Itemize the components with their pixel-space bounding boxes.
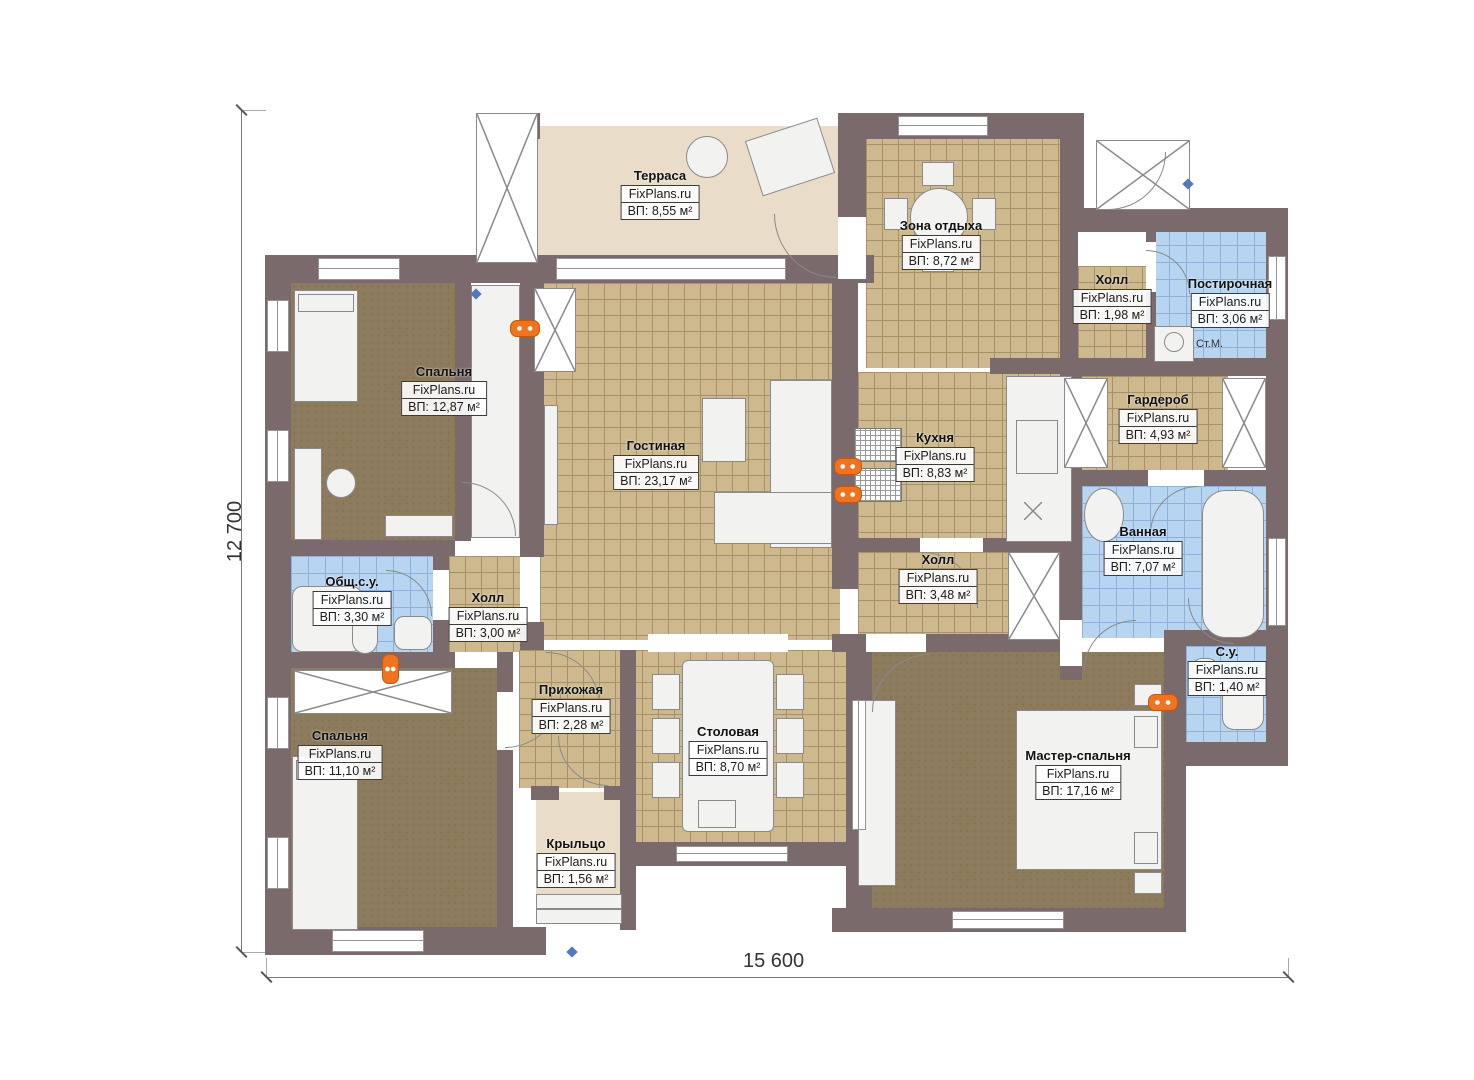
radiator-icon [834, 486, 862, 503]
tv-cabinet-icon [544, 405, 558, 525]
wall [433, 540, 449, 570]
nightstand-icon [1134, 872, 1162, 894]
wall [620, 650, 636, 930]
room-area: ВП: 8,83 м² [897, 465, 974, 481]
room-label-hall-top: Холл FixPlans.ru ВП: 1,98 м² [1073, 272, 1152, 324]
door-opening [1148, 470, 1204, 486]
watermark: FixPlans.ru [450, 608, 527, 625]
porch-step [536, 894, 622, 909]
room-name: Гостиная [613, 438, 699, 453]
room-label-wardrobe: Гардероб FixPlans.ru ВП: 4,93 м² [1119, 392, 1198, 444]
hall-closet-icon [1008, 552, 1060, 640]
radiator-icon [1148, 694, 1178, 711]
room-name: Спальня [298, 728, 383, 743]
wall [497, 652, 513, 692]
wall [265, 540, 455, 556]
window [952, 911, 1064, 929]
room-name: Холл [899, 552, 978, 567]
room-area: ВП: 23,17 м² [614, 473, 698, 489]
wall [604, 786, 620, 800]
door-opening [648, 634, 788, 652]
window [556, 258, 786, 280]
wall [497, 750, 513, 930]
window [267, 300, 289, 352]
wall [832, 538, 920, 552]
room-name: Общ.с.у. [313, 574, 392, 589]
survey-marker-icon [566, 946, 577, 957]
window [267, 430, 289, 482]
wardrobe-cabinet-icon [1064, 378, 1108, 468]
room-label-entry: Прихожая FixPlans.ru ВП: 2,28 м² [532, 682, 611, 734]
dimension-width-label: 15 600 [743, 950, 804, 973]
watermark: FixPlans.ru [538, 854, 615, 871]
room-area: ВП: 8,55 м² [622, 203, 699, 219]
window [267, 837, 289, 889]
room-label-rest-area: Зона отдыха FixPlans.ru ВП: 8,72 м² [900, 218, 982, 270]
wall [1060, 139, 1084, 209]
room-name: Прихожая [532, 682, 611, 697]
room-label-kitchen: Кухня FixPlans.ru ВП: 8,83 м² [896, 430, 975, 482]
dimension-height-label: 12 700 [224, 501, 247, 562]
chair-icon [652, 762, 680, 798]
room-label-bedroom1: Спальня FixPlans.ru ВП: 12,87 м² [401, 364, 487, 416]
watermark: FixPlans.ru [1120, 410, 1197, 427]
watermark: FixPlans.ru [1105, 542, 1182, 559]
window [332, 930, 424, 952]
room-area: ВП: 17,16 м² [1036, 783, 1120, 799]
room-name: Постирочная [1188, 276, 1272, 291]
watermark: FixPlans.ru [690, 742, 767, 759]
room-area: ВП: 7,07 м² [1105, 559, 1182, 575]
window [267, 697, 289, 749]
radiator-icon [834, 458, 862, 475]
room-area: ВП: 11,10 м² [299, 763, 382, 779]
room-name: Терраса [621, 168, 700, 183]
room-label-hall-right: Холл FixPlans.ru ВП: 3,48 м² [899, 552, 978, 604]
radiator-icon [510, 320, 540, 337]
dimension-line-horizontal [266, 977, 1288, 978]
room-name: Гардероб [1119, 392, 1198, 407]
room-name: Крыльцо [537, 836, 616, 851]
room-label-bathroom: Ванная FixPlans.ru ВП: 7,07 м² [1104, 524, 1183, 576]
kitchen-sink-icon [1016, 420, 1058, 474]
room-area: ВП: 3,48 м² [900, 587, 977, 603]
chair-icon [652, 718, 680, 754]
chair-icon [776, 762, 804, 798]
bed-pillow [298, 294, 354, 312]
bed-pillow [1134, 832, 1158, 864]
room-area: ВП: 8,70 м² [690, 759, 767, 775]
room-label-porch: Крыльцо FixPlans.ru ВП: 1,56 м² [537, 836, 616, 888]
room-area: ВП: 2,28 м² [533, 717, 610, 733]
watermark: FixPlans.ru [1189, 662, 1266, 679]
room-label-hall-left: Холл FixPlans.ru ВП: 3,00 м² [449, 590, 528, 642]
coffee-table-icon [702, 398, 746, 462]
room-name: Ванная [1104, 524, 1183, 539]
extension-line [1288, 958, 1289, 977]
watermark: FixPlans.ru [900, 570, 977, 587]
watermark: FixPlans.ru [1074, 290, 1151, 307]
room-area: ВП: 1,40 м² [1189, 679, 1266, 695]
wall [1060, 666, 1082, 680]
porch-step [536, 909, 622, 924]
bedroom2-closet-icon [294, 670, 452, 714]
wc-sink-icon [394, 616, 432, 650]
window [676, 846, 788, 862]
chair-icon [652, 674, 680, 710]
terrace-screen [476, 113, 538, 263]
room-name: Зона отдыха [900, 218, 982, 233]
watermark: FixPlans.ru [1036, 766, 1120, 783]
watermark: FixPlans.ru [1192, 294, 1269, 311]
wall [531, 786, 559, 800]
room-label-bedroom2: Спальня FixPlans.ru ВП: 11,10 м² [298, 728, 383, 780]
chair-icon [698, 800, 736, 828]
room-area: ВП: 12,87 м² [402, 399, 486, 415]
desk-chair-icon [326, 468, 356, 498]
room-area: ВП: 3,06 м² [1192, 311, 1269, 327]
floor-plan: 12 700 15 600 Ст.М. Терраса FixPlans.ru … [0, 0, 1474, 1080]
bed-icon [292, 756, 358, 930]
window [898, 116, 988, 136]
room-area: ВП: 1,98 м² [1074, 307, 1151, 323]
window [852, 700, 866, 830]
wall [1060, 208, 1288, 232]
door-opening [920, 538, 983, 552]
watermark: FixPlans.ru [903, 236, 980, 253]
watermark: FixPlans.ru [314, 592, 391, 609]
bed-pillow [1134, 716, 1158, 748]
hob-mark-icon [1024, 502, 1042, 520]
watermark: FixPlans.ru [897, 448, 974, 465]
door-opening [866, 634, 926, 652]
room-label-wc-small: С.у. FixPlans.ru ВП: 1,40 м² [1188, 644, 1267, 696]
chair-icon [776, 718, 804, 754]
room-name: Кухня [896, 430, 975, 445]
washing-machine-label: Ст.М. [1196, 338, 1223, 350]
room-label-living: Гостиная FixPlans.ru ВП: 23,17 м² [613, 438, 699, 490]
room-label-wc-common: Общ.с.у. FixPlans.ru ВП: 3,30 м² [313, 574, 392, 626]
wall [265, 652, 455, 668]
chair-icon [922, 162, 954, 186]
room-area: ВП: 3,00 м² [450, 625, 527, 641]
room-name: Спальня [401, 364, 487, 379]
room-label-master: Мастер-спальня FixPlans.ru ВП: 17,16 м² [1025, 748, 1130, 800]
wardrobe-cabinet-icon [1222, 378, 1266, 468]
room-area: ВП: 8,72 м² [903, 253, 980, 269]
extension-line [266, 958, 267, 977]
room-label-dining: Столовая FixPlans.ru ВП: 8,70 м² [689, 724, 768, 776]
room-area: ВП: 3,30 м² [314, 609, 391, 625]
room-name: С.у. [1188, 644, 1267, 659]
watermark: FixPlans.ru [299, 746, 382, 763]
room-name: Холл [449, 590, 528, 605]
washer-door-icon [1164, 332, 1184, 352]
door-opening [838, 217, 866, 279]
radiator-icon [382, 654, 399, 684]
room-area: ВП: 1,56 м² [538, 871, 615, 887]
fireplace-icon [534, 288, 576, 372]
watermark: FixPlans.ru [614, 456, 698, 473]
window [1268, 538, 1286, 626]
room-label-laundry: Постирочная FixPlans.ru ВП: 3,06 м² [1188, 276, 1272, 328]
watermark: FixPlans.ru [622, 186, 699, 203]
wall [990, 358, 1080, 374]
door-opening [1060, 620, 1082, 666]
room-name: Холл [1073, 272, 1152, 287]
dresser-icon [385, 515, 453, 537]
room-area: ВП: 4,93 м² [1120, 427, 1197, 443]
watermark: FixPlans.ru [402, 382, 486, 399]
sofa-chaise-icon [714, 492, 832, 544]
chair-icon [776, 674, 804, 710]
room-name: Мастер-спальня [1025, 748, 1130, 763]
watermark: FixPlans.ru [533, 700, 610, 717]
room-name: Столовая [689, 724, 768, 739]
wall [433, 620, 449, 668]
room-label-terrace: Терраса FixPlans.ru ВП: 8,55 м² [621, 168, 700, 220]
window [318, 258, 400, 280]
desk-icon [294, 448, 322, 540]
